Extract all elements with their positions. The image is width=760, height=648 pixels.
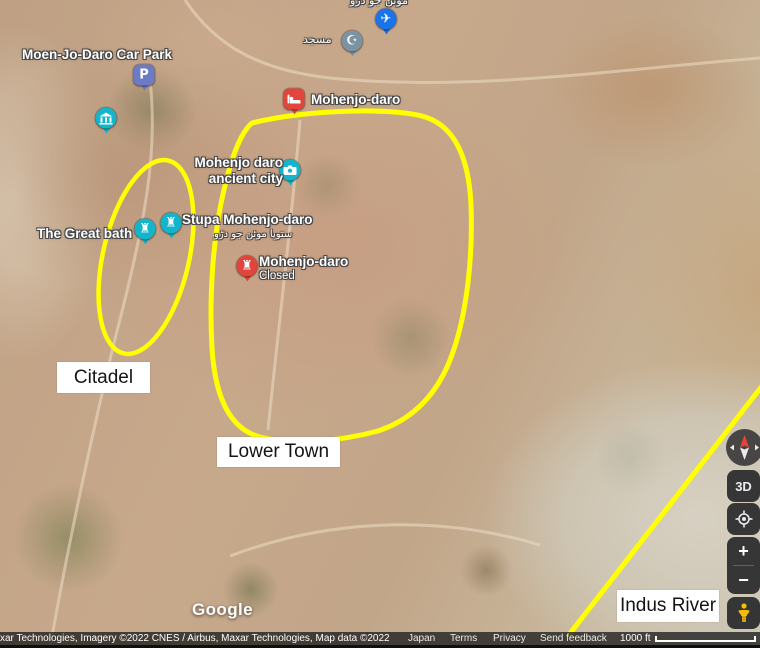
closed-site-label: Mohenjo-daro <box>259 254 348 269</box>
bed-icon <box>288 94 301 105</box>
my-location-button[interactable] <box>727 503 760 535</box>
3d-view-button[interactable]: 3D <box>727 470 760 502</box>
map-viewport[interactable]: P ☪ ✈ <box>0 0 760 648</box>
region-label[interactable]: Japan <box>408 633 435 644</box>
camera-icon <box>284 165 297 176</box>
zoom-in-button[interactable]: + <box>727 537 760 565</box>
scale-label[interactable]: 1000 ft <box>620 633 651 644</box>
privacy-link[interactable]: Privacy <box>493 633 526 644</box>
pegman-icon <box>737 603 751 623</box>
museum-pin[interactable] <box>96 108 117 129</box>
3d-label: 3D <box>735 479 752 494</box>
zoom-out-button[interactable]: − <box>727 566 760 594</box>
rook-icon: ♜ <box>165 217 177 230</box>
stupa-historic-pin[interactable]: ♜ <box>161 213 182 234</box>
attribution-bar: xar Technologies, Imagery ©2022 CNES / A… <box>0 632 760 645</box>
ancient-city-label: Mohenjo daro ancient city <box>180 155 283 187</box>
ancient-city-line1: Mohenjo daro <box>180 155 283 171</box>
mosque-pin[interactable]: ☪ <box>342 31 363 52</box>
scale-bar <box>655 636 756 642</box>
airport-pin[interactable]: ✈ <box>376 9 397 30</box>
great-bath-historic-pin[interactable]: ♜ <box>135 219 156 240</box>
stupa-label: Stupa Mohenjo-daro <box>182 212 313 227</box>
car-park-label: Moen-Jo-Daro Car Park <box>22 47 172 62</box>
rook-icon: ♜ <box>241 260 253 273</box>
lodging-pin[interactable] <box>284 89 305 110</box>
closed-status-label: Closed <box>259 270 295 282</box>
zoom-control: + − <box>727 537 760 594</box>
mosque-label: مسجد <box>303 33 332 46</box>
museum-icon <box>100 112 113 124</box>
terms-link[interactable]: Terms <box>450 633 477 644</box>
lodging-label: Mohenjo-daro <box>311 92 400 107</box>
airport-urdu-label: موئن جو دڑو <box>350 0 408 7</box>
crescent-icon: ☪ <box>346 35 358 48</box>
pegman-button[interactable] <box>727 597 760 629</box>
parking-icon: P <box>139 69 149 82</box>
my-location-icon <box>735 510 753 528</box>
google-logo[interactable]: Google <box>192 600 253 620</box>
ancient-city-line2: ancient city <box>180 171 283 187</box>
rook-icon: ♜ <box>139 223 151 236</box>
stupa-urdu-label: ستوپا موئن جو دڑو <box>214 229 292 240</box>
parking-pin[interactable]: P <box>134 65 155 86</box>
compass-icon <box>726 429 760 466</box>
plane-icon: ✈ <box>381 13 392 26</box>
compass-control[interactable] <box>726 429 760 466</box>
lower-town-callout: Lower Town <box>217 437 340 467</box>
roads <box>50 0 760 648</box>
closed-site-pin[interactable]: ♜ <box>237 256 258 277</box>
map-attribution: xar Technologies, Imagery ©2022 CNES / A… <box>0 633 390 644</box>
indus-river-callout: Indus River <box>617 590 719 622</box>
citadel-callout: Citadel <box>57 362 150 393</box>
send-feedback-link[interactable]: Send feedback <box>540 633 607 644</box>
great-bath-label: The Great bath <box>37 226 132 241</box>
